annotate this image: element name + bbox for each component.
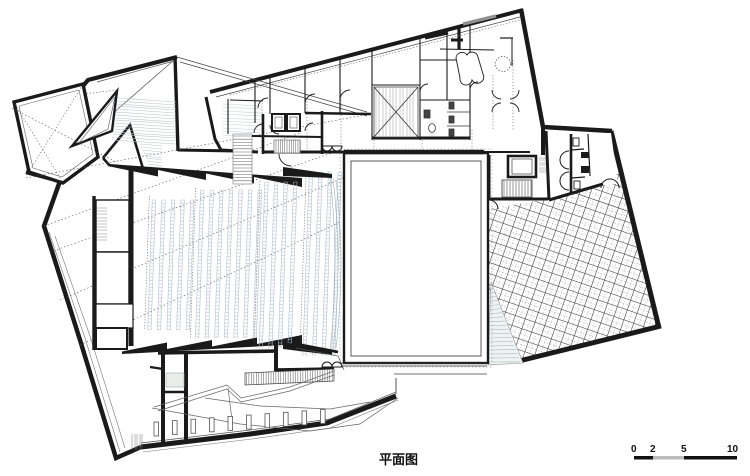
svg-text:0: 0 bbox=[631, 444, 637, 455]
svg-text:平面图: 平面图 bbox=[379, 452, 418, 467]
svg-text:10: 10 bbox=[727, 444, 739, 455]
svg-text:5: 5 bbox=[681, 444, 687, 455]
svg-text:2: 2 bbox=[650, 444, 656, 455]
